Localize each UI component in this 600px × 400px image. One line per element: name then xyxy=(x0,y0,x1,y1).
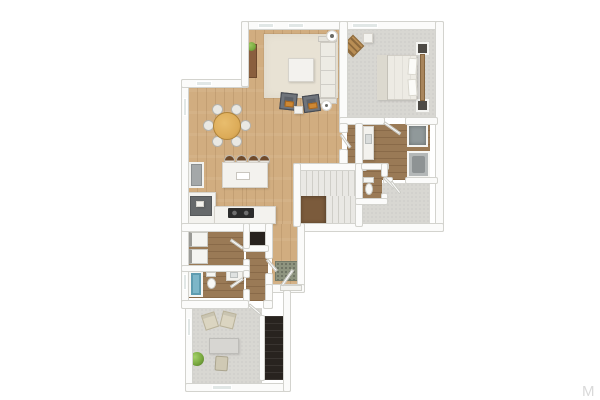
headboard xyxy=(420,54,425,101)
window-bedroom xyxy=(352,23,378,28)
wall-bedroom-bottom-left xyxy=(340,118,384,124)
cube-side-table xyxy=(363,33,373,43)
island-sink xyxy=(236,172,250,180)
small-table xyxy=(294,106,303,114)
wall-bedroom-bottom-right xyxy=(406,118,437,124)
wall-stairs-right xyxy=(356,164,362,226)
wall-laundry-bath-divider xyxy=(182,266,249,271)
window-bath2 xyxy=(183,274,187,290)
watermark-letter: M xyxy=(582,383,595,400)
tub-unit xyxy=(407,151,430,178)
washer xyxy=(189,232,208,247)
wc-toilet-bowl xyxy=(365,183,373,195)
wall-office-bottom xyxy=(186,384,290,391)
window-office-bottom xyxy=(212,385,232,390)
pillow xyxy=(407,79,417,97)
staircase-open-landing xyxy=(300,196,326,224)
window-dining-left xyxy=(183,98,187,116)
side-table-bottom xyxy=(321,100,332,111)
wall-bath2-right-lower xyxy=(244,290,249,301)
wall-kitchen-bottom xyxy=(182,224,272,231)
window-living-1 xyxy=(258,23,274,28)
tub-basin xyxy=(412,156,425,173)
wall-office-top-left xyxy=(182,301,248,308)
window-office-left xyxy=(187,318,191,336)
bathtub xyxy=(189,271,203,297)
cooktop xyxy=(228,208,254,218)
refrigerator xyxy=(189,162,204,188)
toilet-bowl xyxy=(207,278,216,289)
wall-dining-top xyxy=(182,80,248,87)
wall-stairs-left xyxy=(294,164,300,226)
bed-throw xyxy=(377,55,388,100)
floor-plan-image: M xyxy=(0,0,600,400)
wall-office-left xyxy=(186,301,192,391)
wall-entry-left-lower xyxy=(266,274,272,285)
wall-entry-left-upper xyxy=(266,224,272,258)
throw-pillow xyxy=(308,102,318,109)
window-living-2 xyxy=(288,23,304,28)
office-desk-chair xyxy=(214,356,228,372)
dining-chair xyxy=(240,120,251,131)
wall-exterior-right xyxy=(436,22,443,231)
window-dining-top xyxy=(196,81,212,86)
basement-stairwell xyxy=(264,316,284,380)
lower-hall-floor xyxy=(246,251,268,301)
ottoman-coffee-table xyxy=(288,58,314,82)
under-stair-closet-floor xyxy=(246,230,268,247)
bath-sink xyxy=(365,134,372,144)
wall-hall-bath-divider xyxy=(356,124,362,166)
wall-wc-right-upper xyxy=(382,164,387,176)
toilet-tank xyxy=(206,272,216,277)
dryer xyxy=(189,249,208,264)
wall-entry-right xyxy=(298,224,304,292)
sofa xyxy=(320,42,336,98)
office-plant xyxy=(190,352,204,366)
staircase-upper-flight xyxy=(300,170,358,196)
throw-pillow xyxy=(284,101,294,108)
wall-living-left xyxy=(242,22,248,86)
bath2-sink xyxy=(230,272,238,278)
wall-wc-bottom xyxy=(356,199,387,204)
wall-bath-closet-right xyxy=(406,178,437,183)
armchair-right xyxy=(302,94,321,113)
wall-laundry-right-upper xyxy=(244,224,249,248)
wall-office-right xyxy=(284,291,290,391)
wall-office-top-right xyxy=(264,301,272,308)
round-dining-table xyxy=(213,112,241,140)
living-plant xyxy=(247,42,256,51)
office-desk xyxy=(209,338,239,354)
wall-stairwell-left xyxy=(260,316,264,380)
pillow xyxy=(407,58,417,76)
side-table-top xyxy=(326,30,338,42)
shower xyxy=(407,124,428,147)
wall-exterior-bottom-right xyxy=(304,224,443,231)
staircase-lower-flight xyxy=(326,196,358,224)
wall-living-bedroom-divider xyxy=(340,22,347,118)
counter-item xyxy=(196,201,204,207)
wall-suite-hall-upper xyxy=(340,124,347,132)
wall-bath2-right-upper xyxy=(244,271,249,277)
